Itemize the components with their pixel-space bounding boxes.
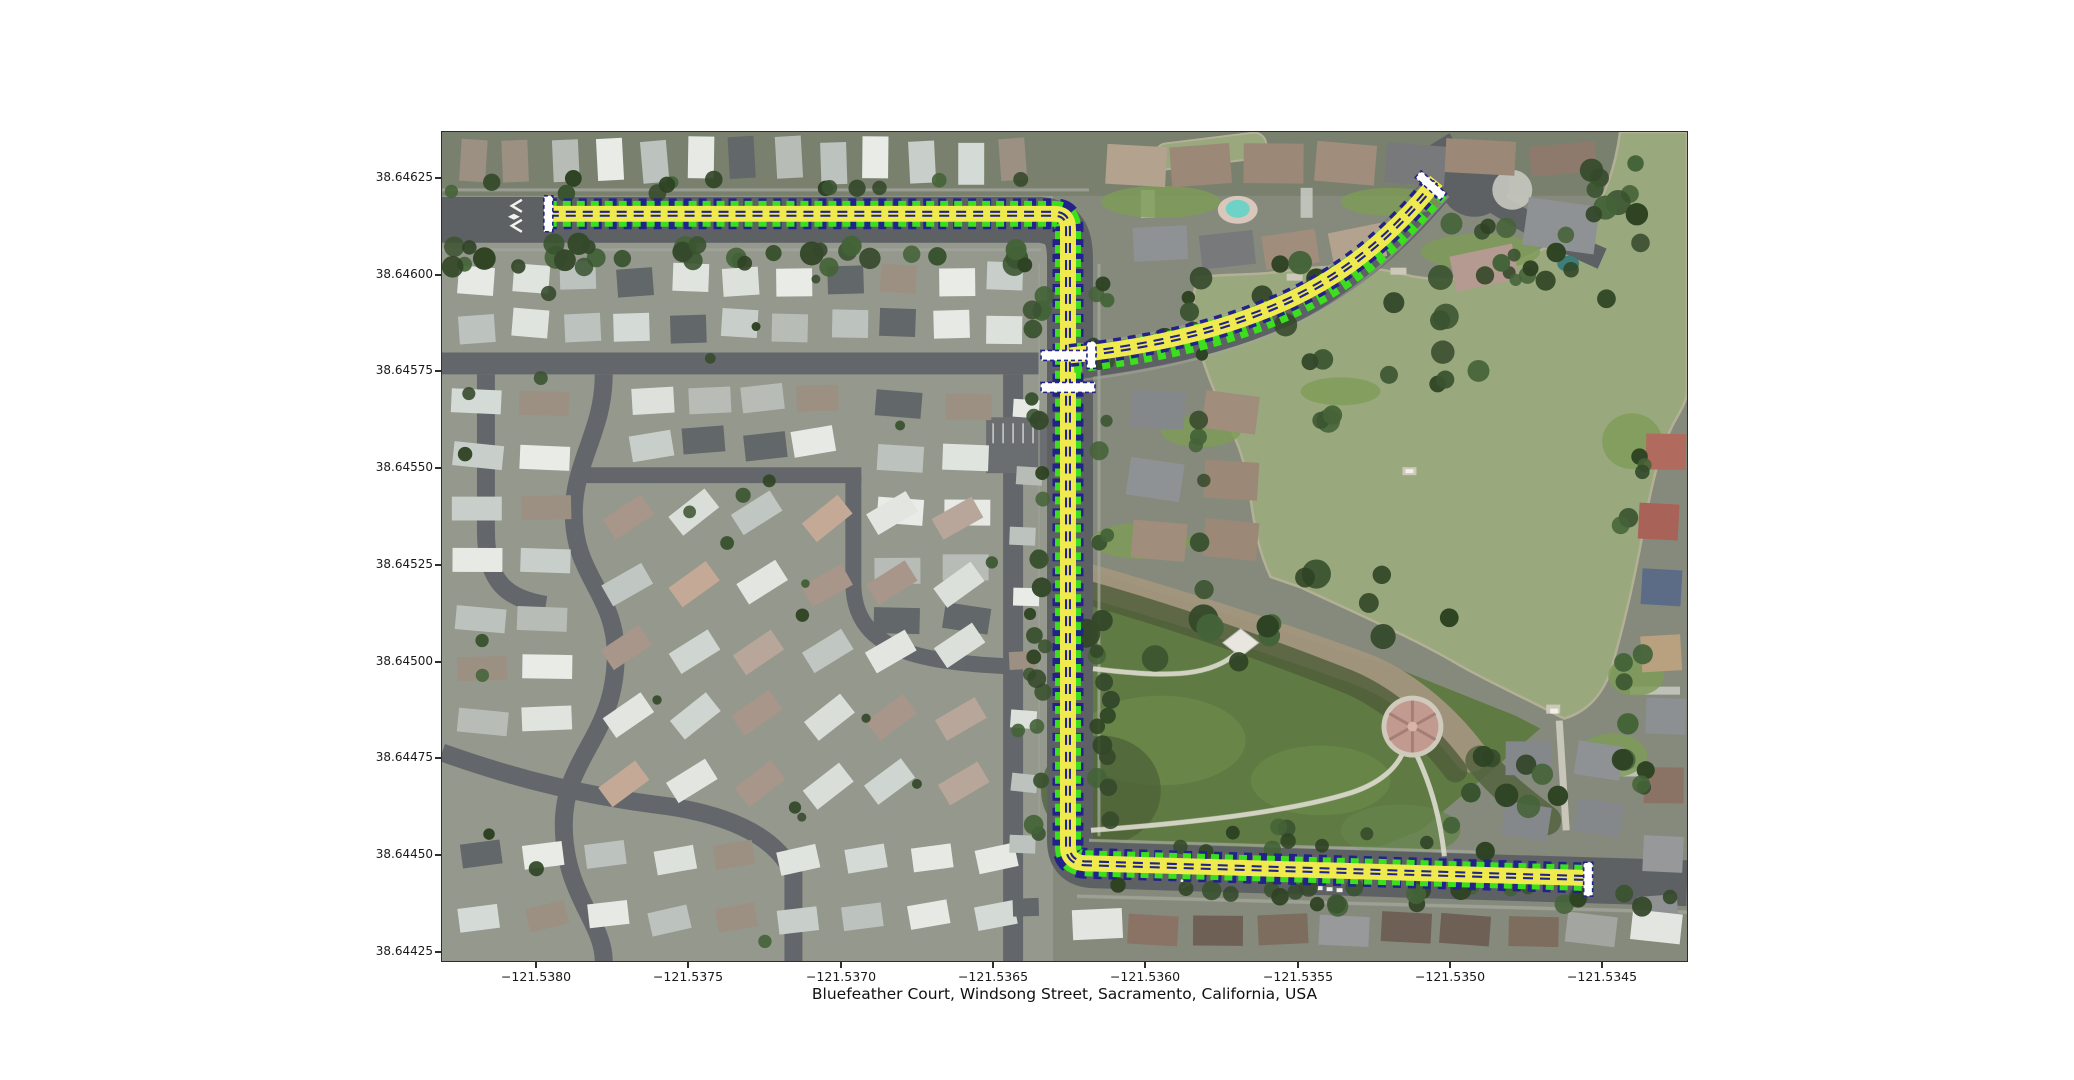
tree — [1288, 251, 1312, 275]
house-roof — [1130, 390, 1185, 430]
house-roof — [616, 267, 654, 298]
tree — [1420, 836, 1433, 849]
house-roof — [1072, 908, 1123, 940]
tree — [1095, 276, 1110, 291]
tree — [1295, 568, 1315, 588]
tree — [1440, 608, 1459, 627]
tree — [1632, 775, 1650, 793]
x-tick-mark — [1297, 962, 1299, 968]
tree — [1271, 888, 1289, 906]
tree — [1026, 650, 1041, 665]
house-roof — [879, 308, 916, 337]
tree — [1612, 749, 1634, 771]
y-tick-label: 38.64500 — [333, 653, 433, 670]
y-tick-label: 38.64425 — [333, 943, 433, 960]
tree — [1563, 262, 1579, 278]
tree — [819, 257, 838, 276]
tree — [789, 801, 801, 813]
y-tick-label: 38.64625 — [333, 169, 433, 186]
house-roof — [670, 315, 707, 344]
y-tick-mark — [435, 467, 441, 469]
tree — [1310, 897, 1324, 911]
house-roof — [771, 314, 808, 343]
tree — [720, 536, 734, 550]
tree — [473, 247, 496, 270]
tree — [1024, 320, 1043, 339]
matplotlib-figure: Bluefeather Court, Windsong Street, Sacr… — [0, 0, 2074, 1080]
tree — [483, 174, 500, 191]
house-roof — [1314, 141, 1377, 186]
tree — [541, 286, 556, 301]
tree — [1496, 218, 1516, 238]
house-roof — [862, 136, 888, 178]
house-roof — [777, 906, 819, 934]
tree — [1100, 528, 1114, 542]
x-tick-mark — [1601, 962, 1603, 968]
x-tick-mark — [535, 962, 537, 968]
tree — [1370, 624, 1395, 649]
house-roof — [875, 389, 923, 419]
tree — [1597, 289, 1616, 308]
tree — [1546, 243, 1566, 263]
y-tick-label: 38.64475 — [333, 749, 433, 766]
house-roof — [1127, 914, 1179, 947]
house-roof — [1257, 913, 1308, 945]
tree — [1617, 713, 1638, 734]
tree — [1035, 492, 1050, 507]
tree — [1476, 266, 1494, 284]
tree — [895, 421, 905, 431]
house-roof — [1009, 527, 1036, 546]
y-tick-mark — [435, 177, 441, 179]
tree — [1180, 302, 1199, 321]
tree — [1196, 614, 1224, 641]
tree — [683, 505, 696, 518]
x-tick-mark — [1449, 962, 1451, 968]
tree — [462, 240, 476, 254]
y-tick-label: 38.64550 — [333, 459, 433, 476]
house-roof — [1202, 390, 1260, 434]
tree — [801, 579, 810, 588]
tree — [1586, 206, 1602, 222]
tree — [1509, 274, 1521, 286]
tree — [1038, 639, 1052, 653]
tree — [1616, 673, 1633, 690]
tree — [797, 813, 806, 822]
tree — [1091, 610, 1112, 631]
y-tick-label: 38.64600 — [333, 266, 433, 283]
tree — [614, 250, 631, 267]
house-roof — [880, 264, 918, 294]
y-tick-mark — [435, 854, 441, 856]
house-roof — [877, 444, 925, 473]
house-roof — [1381, 911, 1432, 943]
house-roof — [1193, 916, 1243, 946]
tree — [763, 474, 776, 487]
tree — [483, 828, 494, 839]
house-roof — [740, 383, 785, 414]
tree — [1142, 645, 1169, 672]
tree — [1631, 234, 1650, 253]
y-tick-mark — [435, 274, 441, 276]
house-roof — [1646, 433, 1687, 470]
tree — [1480, 219, 1495, 234]
house-roof — [682, 425, 726, 454]
house-roof — [519, 445, 570, 471]
tree — [705, 171, 723, 189]
house-roof — [1243, 143, 1303, 183]
y-tick-label: 38.64450 — [333, 846, 433, 863]
tree — [737, 256, 752, 271]
y-tick-mark — [435, 757, 441, 759]
tree — [1190, 428, 1207, 445]
house-roof — [1318, 915, 1369, 947]
tree — [1373, 566, 1392, 584]
tree — [861, 714, 870, 723]
house-roof — [1199, 230, 1256, 270]
tree — [1030, 719, 1045, 734]
plot-title: Bluefeather Court, Windsong Street, Sacr… — [441, 985, 1688, 1003]
house-roof — [1565, 912, 1618, 948]
tree — [1302, 353, 1319, 370]
tree — [1027, 669, 1046, 688]
tree — [1443, 817, 1460, 834]
tree — [1029, 550, 1048, 569]
tree — [1024, 815, 1044, 835]
house-roof — [521, 705, 572, 731]
house-roof — [841, 902, 884, 931]
tree — [1360, 827, 1373, 840]
house-roof — [1169, 143, 1232, 187]
tree — [752, 322, 761, 331]
tree — [1030, 411, 1049, 430]
x-tick-mark — [1144, 962, 1146, 968]
house-roof — [1105, 144, 1167, 187]
tree — [1468, 360, 1490, 382]
y-tick-mark — [435, 951, 441, 953]
gazebo — [1381, 696, 1443, 758]
tree — [442, 256, 463, 278]
house-roof — [1203, 460, 1259, 501]
tree — [841, 236, 861, 256]
cul-de-sac-apron — [1492, 170, 1532, 210]
tree — [475, 634, 488, 647]
tree — [1182, 291, 1195, 304]
tree — [1612, 516, 1630, 534]
tree — [1032, 577, 1052, 597]
house-roof — [873, 607, 920, 634]
tree — [1099, 748, 1116, 765]
y-tick-label: 38.64575 — [333, 362, 433, 379]
tree — [1280, 833, 1295, 848]
house-roof — [933, 310, 970, 339]
x-tick-label: −121.5360 — [1095, 969, 1195, 984]
tree — [1270, 819, 1287, 836]
x-tick-label: −121.5355 — [1248, 969, 1348, 984]
house-roof — [1202, 518, 1259, 561]
tree — [1380, 366, 1398, 384]
tree — [659, 177, 675, 193]
tree — [565, 170, 582, 187]
tree — [1024, 608, 1036, 620]
tree — [1626, 203, 1648, 225]
house-roof — [519, 391, 569, 416]
tree — [1100, 293, 1114, 307]
tree — [1632, 896, 1652, 916]
tree — [1436, 371, 1454, 389]
x-tick-label: −121.5350 — [1400, 969, 1500, 984]
tree — [1271, 255, 1288, 272]
x-tick-label: −121.5345 — [1552, 969, 1652, 984]
tree — [1190, 533, 1210, 552]
house-roof — [1645, 698, 1686, 735]
house-roof — [520, 548, 571, 574]
house-roof — [459, 139, 487, 182]
tree — [458, 447, 472, 461]
tree — [1223, 886, 1239, 902]
tree — [1615, 885, 1633, 903]
tree — [1635, 465, 1650, 480]
house-roof — [564, 313, 601, 343]
house-roof — [451, 388, 502, 414]
tree — [796, 608, 809, 621]
tree — [765, 245, 781, 261]
tree — [1017, 257, 1032, 272]
tree — [1327, 894, 1346, 913]
x-tick-mark — [992, 962, 994, 968]
tree — [582, 240, 596, 254]
tree — [932, 173, 947, 188]
tree — [534, 371, 548, 385]
tree — [1359, 593, 1379, 613]
tree — [705, 353, 716, 364]
satellite-map — [442, 132, 1687, 961]
house-roof — [501, 140, 529, 183]
tree — [1194, 580, 1213, 599]
house-roof — [820, 142, 847, 185]
tree — [444, 237, 464, 257]
tree — [1189, 411, 1208, 430]
house-roof — [1508, 916, 1559, 947]
tree — [652, 695, 661, 704]
house-roof — [631, 387, 674, 415]
tree — [1315, 839, 1329, 853]
tree — [1229, 652, 1248, 671]
tree — [1441, 213, 1463, 235]
house-roof — [584, 840, 627, 869]
tree — [1025, 392, 1038, 405]
tree — [1179, 881, 1194, 896]
x-tick-label: −121.5370 — [791, 969, 891, 984]
tree — [1433, 304, 1459, 329]
tree — [1197, 474, 1210, 487]
y-tick-mark — [435, 370, 441, 372]
tree — [1202, 881, 1221, 900]
tree — [859, 248, 880, 269]
house-roof — [832, 309, 868, 338]
tree — [812, 243, 827, 258]
tree — [1035, 466, 1049, 480]
tree — [822, 180, 837, 195]
house-roof — [1009, 835, 1036, 854]
tree — [476, 669, 489, 682]
tree — [872, 181, 886, 195]
plot-area — [441, 131, 1688, 962]
tree — [912, 779, 922, 789]
tree — [1257, 615, 1279, 637]
tree — [1548, 786, 1568, 806]
tree — [1102, 691, 1120, 709]
house-roof — [511, 308, 549, 339]
tree — [575, 258, 593, 276]
y-tick-mark — [435, 661, 441, 663]
house-roof — [587, 900, 629, 928]
tree — [1011, 724, 1025, 738]
house-roof — [721, 308, 759, 338]
house-roof — [517, 606, 568, 632]
tree — [1033, 773, 1049, 789]
house-roof — [1133, 225, 1189, 262]
tree — [1100, 415, 1112, 427]
tree — [1428, 265, 1453, 290]
y-tick-mark — [435, 564, 441, 566]
house-roof — [945, 393, 991, 420]
house-roof — [1439, 913, 1491, 947]
tree — [1663, 890, 1677, 904]
x-tick-label: −121.5365 — [943, 969, 1043, 984]
tree — [848, 180, 865, 197]
house-roof — [457, 708, 509, 737]
x-tick-mark — [840, 962, 842, 968]
tree — [1023, 300, 1042, 319]
tree — [1090, 644, 1104, 658]
tree — [736, 488, 751, 503]
house-roof — [455, 605, 507, 633]
tree — [1190, 267, 1213, 290]
house-roof — [521, 495, 571, 520]
tree — [1495, 783, 1519, 807]
house-roof — [775, 136, 803, 179]
house-roof — [522, 654, 572, 679]
tree — [462, 387, 475, 400]
tree — [445, 185, 458, 198]
house-roof — [1638, 503, 1680, 541]
tree — [1101, 811, 1119, 829]
pool — [1226, 200, 1250, 218]
tree — [1536, 271, 1556, 291]
tree — [1532, 764, 1553, 785]
tree — [928, 247, 946, 265]
tree — [1473, 746, 1494, 767]
tree — [1627, 155, 1643, 171]
tree — [689, 236, 707, 254]
y-tick-label: 38.64525 — [333, 556, 433, 573]
tree — [1100, 779, 1118, 797]
tree — [903, 246, 920, 263]
house-roof — [1384, 142, 1447, 187]
house-roof — [1574, 798, 1624, 838]
house-roof — [613, 313, 650, 342]
house-roof — [452, 497, 502, 521]
house-roof — [958, 143, 984, 185]
tree — [1089, 719, 1105, 735]
house-roof — [688, 386, 731, 414]
tree — [1006, 239, 1027, 260]
house-roof — [1641, 568, 1683, 606]
tree — [1090, 441, 1109, 460]
tree — [529, 861, 544, 876]
x-tick-mark — [687, 962, 689, 968]
house-roof — [1126, 457, 1185, 502]
tree — [1287, 884, 1303, 900]
tree — [1508, 249, 1521, 262]
x-tick-label: −121.5375 — [638, 969, 738, 984]
tree — [1523, 260, 1539, 276]
tree — [1633, 644, 1653, 664]
house-roof — [796, 385, 839, 412]
tree — [511, 259, 525, 273]
tree — [1476, 842, 1495, 861]
house-roof — [728, 136, 756, 179]
tree — [1614, 653, 1633, 672]
tree — [811, 275, 820, 284]
house-roof — [939, 268, 975, 296]
x-tick-label: −121.5380 — [486, 969, 586, 984]
tree — [758, 935, 771, 948]
house-roof — [1642, 835, 1684, 873]
house-roof — [986, 316, 1022, 344]
house-roof — [1131, 520, 1188, 562]
house-roof — [942, 444, 989, 472]
house-roof — [1013, 898, 1040, 917]
tree — [986, 556, 998, 568]
house-roof — [457, 904, 500, 933]
house-roof — [743, 431, 788, 461]
tree — [1558, 227, 1575, 244]
house-roof — [722, 267, 760, 297]
house-roof — [596, 138, 624, 181]
tree — [1323, 405, 1342, 424]
tree — [1586, 181, 1603, 198]
house-roof — [776, 268, 812, 296]
tree — [1461, 783, 1481, 803]
tree — [1383, 292, 1404, 313]
house-roof — [452, 548, 502, 572]
tree — [1095, 673, 1113, 691]
tree — [1517, 795, 1541, 819]
house-roof — [908, 141, 936, 184]
tree — [1492, 254, 1510, 272]
tree — [1431, 340, 1455, 363]
tree — [1110, 877, 1126, 893]
tree — [1226, 826, 1240, 840]
tree — [1013, 172, 1028, 187]
house-roof — [458, 314, 496, 344]
